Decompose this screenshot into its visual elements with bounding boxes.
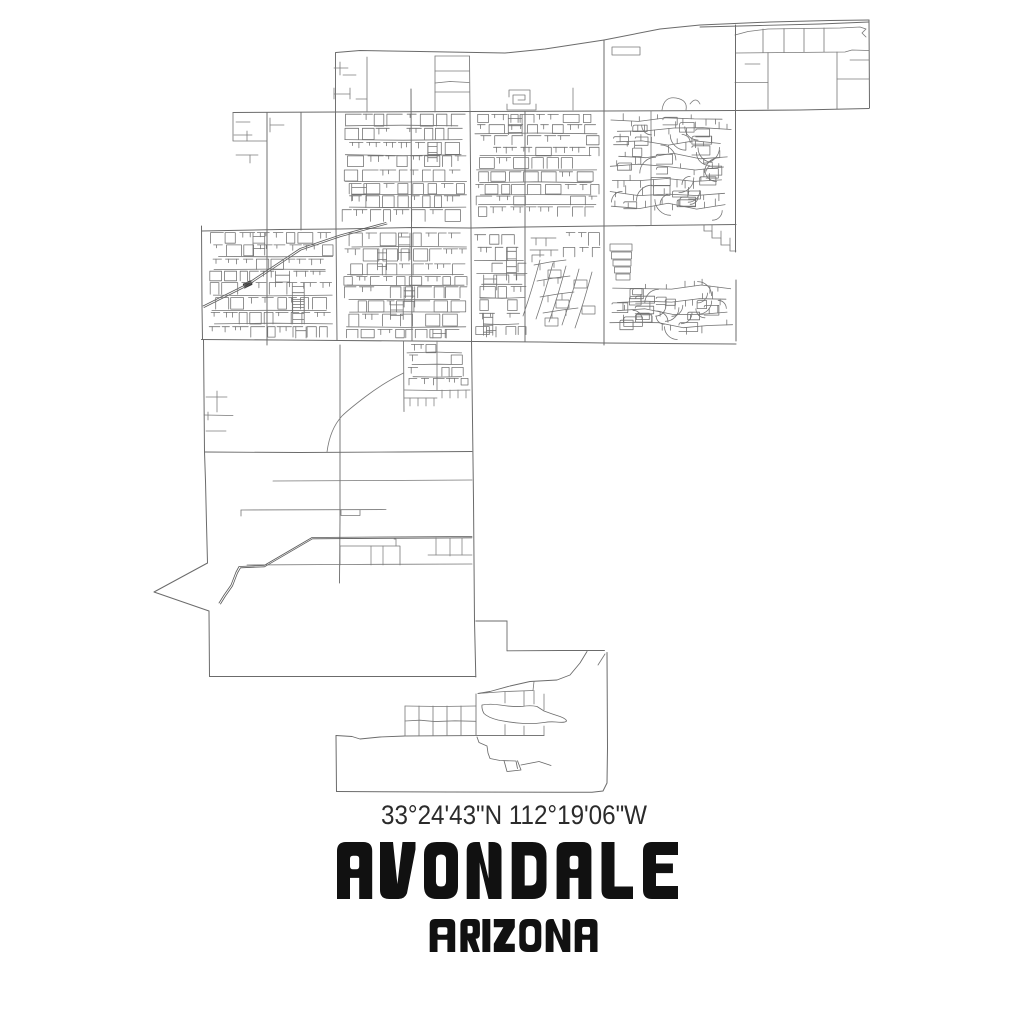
svg-text:33°24'43"N 112°19'06"W: 33°24'43"N 112°19'06"W bbox=[381, 800, 647, 830]
